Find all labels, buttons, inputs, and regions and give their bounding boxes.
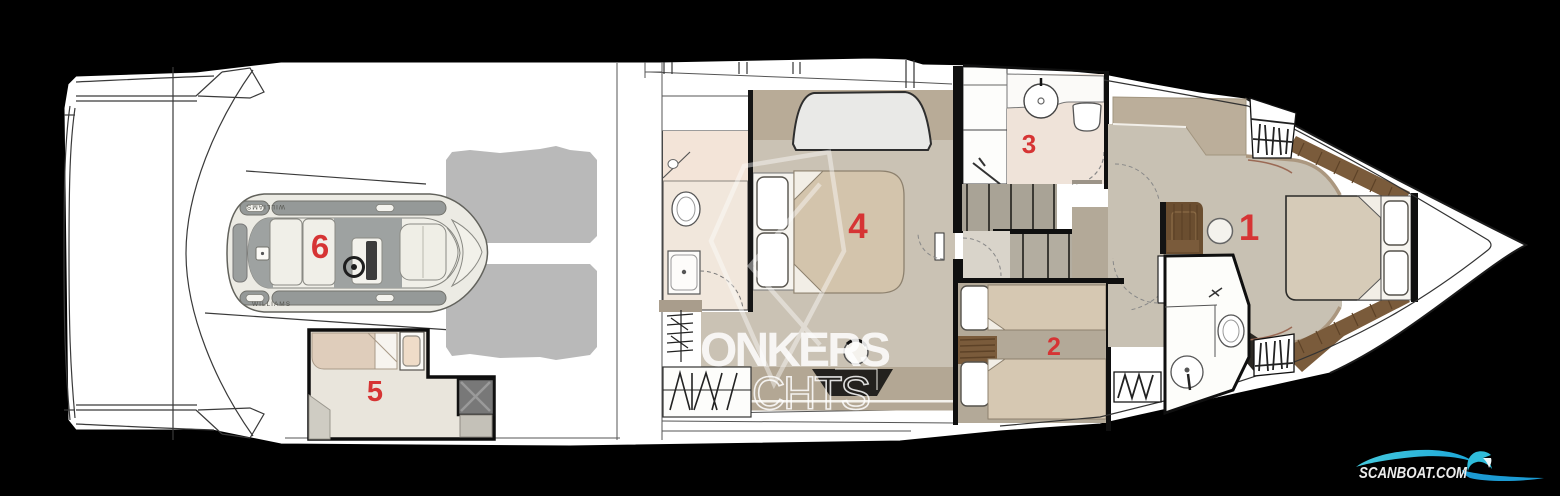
svg-text:SCANBOAT.COM: SCANBOAT.COM	[1359, 465, 1468, 482]
svg-text:WILLIAMS: WILLIAMS	[246, 203, 285, 210]
svg-text:CHTS: CHTS	[752, 367, 871, 419]
svg-text:3: 3	[1022, 129, 1036, 159]
svg-text:1: 1	[1239, 207, 1260, 248]
svg-text:WILLIAMS: WILLIAMS	[252, 301, 291, 308]
svg-text:6: 6	[311, 228, 329, 265]
svg-text:5: 5	[367, 376, 383, 408]
svg-text:4: 4	[848, 207, 868, 246]
svg-text:2: 2	[1047, 333, 1061, 361]
